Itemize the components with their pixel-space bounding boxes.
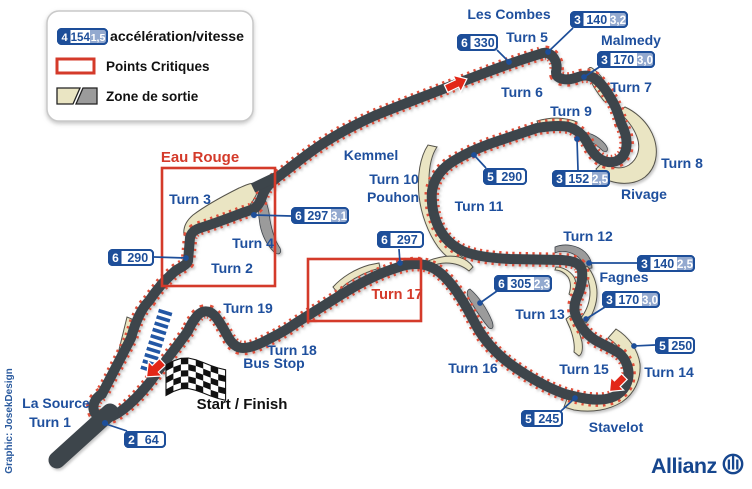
svg-text:Turn 14: Turn 14 <box>644 364 694 380</box>
svg-text:Rivage: Rivage <box>621 186 667 202</box>
svg-text:3: 3 <box>606 293 613 307</box>
svg-text:Turn 3: Turn 3 <box>169 191 211 207</box>
svg-text:64: 64 <box>145 433 159 447</box>
svg-text:6: 6 <box>498 277 505 291</box>
svg-text:290: 290 <box>501 170 522 184</box>
svg-text:Turn 10: Turn 10 <box>369 171 419 187</box>
svg-text:140: 140 <box>586 13 607 27</box>
svg-text:290: 290 <box>127 251 148 265</box>
svg-text:Turn 8: Turn 8 <box>661 155 703 171</box>
svg-text:6: 6 <box>295 209 302 223</box>
svg-text:Turn 12: Turn 12 <box>563 228 613 244</box>
svg-text:140: 140 <box>653 257 674 271</box>
svg-text:Turn 17: Turn 17 <box>371 287 422 303</box>
svg-text:2,5: 2,5 <box>592 174 609 186</box>
svg-text:4: 4 <box>61 32 68 44</box>
svg-text:Graphic: JosekDesign: Graphic: JosekDesign <box>4 368 15 474</box>
svg-text:245: 245 <box>538 412 559 426</box>
svg-text:6: 6 <box>461 36 468 50</box>
svg-text:170: 170 <box>618 293 639 307</box>
svg-text:Les Combes: Les Combes <box>467 6 550 22</box>
svg-text:5: 5 <box>525 412 532 426</box>
svg-text:250: 250 <box>671 339 692 353</box>
svg-text:Turn 15: Turn 15 <box>559 361 609 377</box>
svg-text:297: 297 <box>397 233 418 247</box>
svg-text:Turn 1: Turn 1 <box>29 414 71 430</box>
svg-text:Pouhon: Pouhon <box>367 189 419 205</box>
svg-text:Turn 6: Turn 6 <box>501 84 543 100</box>
svg-text:3,0: 3,0 <box>637 55 653 67</box>
svg-text:2: 2 <box>128 433 135 447</box>
svg-text:Fagnes: Fagnes <box>599 269 648 285</box>
svg-text:Zone de sortie: Zone de sortie <box>106 89 199 104</box>
svg-text:3: 3 <box>574 13 581 27</box>
svg-text:3,0: 3,0 <box>642 295 658 307</box>
svg-text:Turn 19: Turn 19 <box>223 300 273 316</box>
svg-text:Turn 5: Turn 5 <box>506 29 548 45</box>
svg-text:305: 305 <box>510 277 531 291</box>
svg-text:Allianz: Allianz <box>651 454 717 478</box>
svg-text:5: 5 <box>659 339 666 353</box>
svg-text:3,2: 3,2 <box>610 15 626 27</box>
svg-text:3: 3 <box>556 172 563 186</box>
svg-text:Turn 7: Turn 7 <box>610 79 652 95</box>
svg-text:Turn 11: Turn 11 <box>455 198 504 214</box>
svg-text:5: 5 <box>487 170 494 184</box>
svg-text:Stavelot: Stavelot <box>589 419 644 435</box>
svg-text:170: 170 <box>613 53 634 67</box>
svg-text:6: 6 <box>381 233 388 247</box>
svg-text:accélération/vitesse: accélération/vitesse <box>110 29 244 44</box>
svg-text:Malmedy: Malmedy <box>601 32 661 48</box>
svg-text:297: 297 <box>307 209 328 223</box>
svg-text:Turn 9: Turn 9 <box>550 103 592 119</box>
svg-text:330: 330 <box>474 36 495 50</box>
svg-text:Points Critiques: Points Critiques <box>106 59 210 74</box>
svg-text:Turn 4: Turn 4 <box>232 235 274 251</box>
svg-text:2,5: 2,5 <box>677 259 694 271</box>
svg-text:3,1: 3,1 <box>331 211 348 223</box>
svg-text:154: 154 <box>71 32 91 44</box>
svg-text:Turn 13: Turn 13 <box>515 306 565 322</box>
svg-text:2,3: 2,3 <box>534 279 550 291</box>
svg-text:6: 6 <box>112 251 119 265</box>
svg-text:1,5: 1,5 <box>91 32 106 44</box>
svg-text:152: 152 <box>568 172 589 186</box>
svg-text:3: 3 <box>601 53 608 67</box>
svg-text:Kemmel: Kemmel <box>344 147 398 163</box>
svg-text:Start / Finish: Start / Finish <box>197 396 288 413</box>
svg-text:Eau Rouge: Eau Rouge <box>161 149 239 166</box>
svg-text:La Source: La Source <box>22 395 90 411</box>
svg-text:Turn 2: Turn 2 <box>211 260 253 276</box>
svg-text:Bus Stop: Bus Stop <box>243 355 304 371</box>
svg-text:Turn 16: Turn 16 <box>448 360 498 376</box>
